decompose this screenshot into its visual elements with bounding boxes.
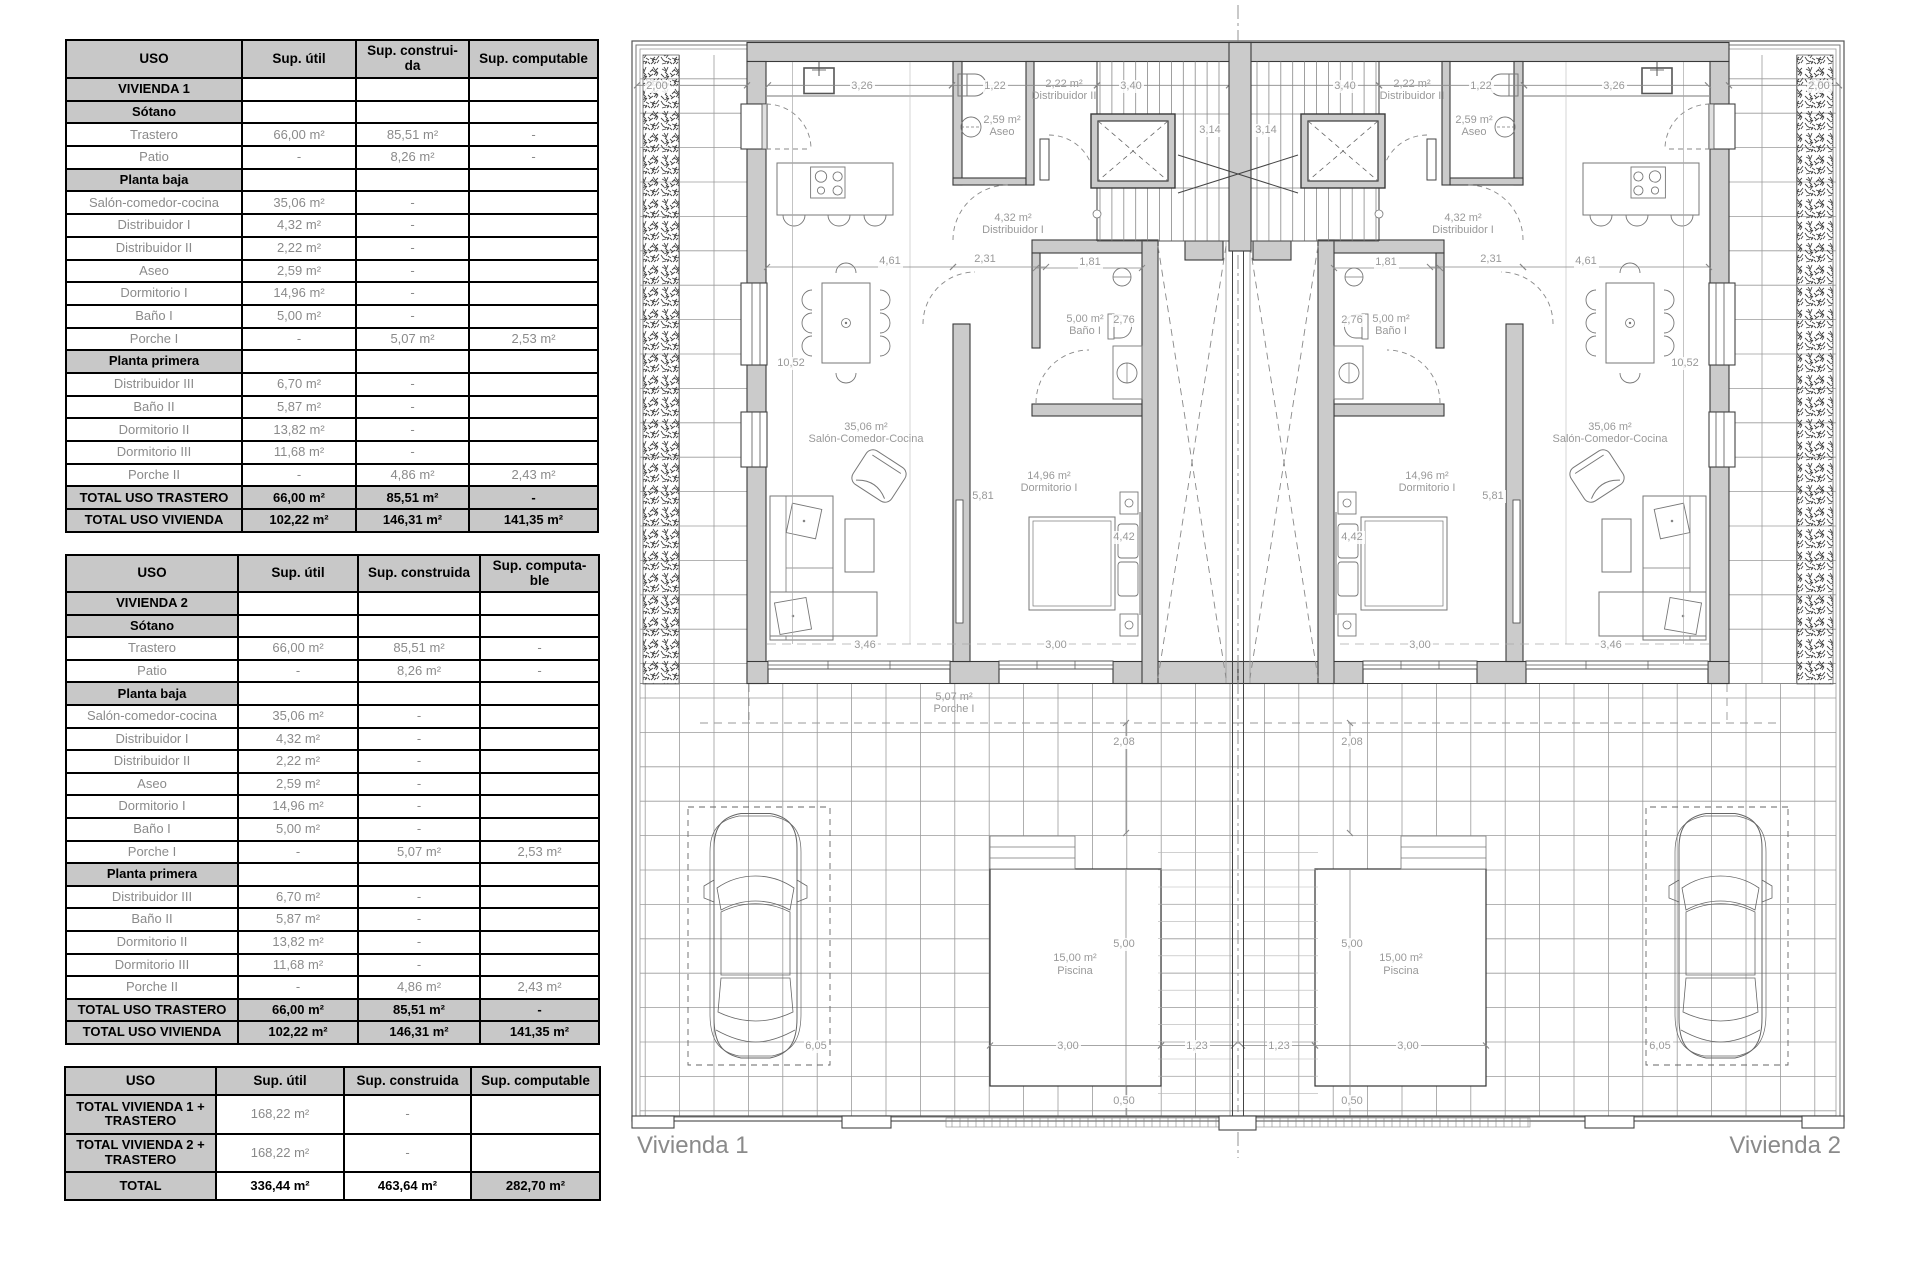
svg-text:1,22: 1,22 (1470, 80, 1491, 92)
svg-text:Piscina: Piscina (1383, 965, 1419, 977)
svg-text:3,40: 3,40 (1120, 80, 1141, 92)
svg-text:Distribuidor II: Distribuidor II (1380, 90, 1445, 102)
svg-text:2,22 m²: 2,22 m² (1045, 78, 1083, 90)
svg-text:3,00: 3,00 (1397, 1040, 1418, 1052)
svg-text:3,00: 3,00 (1409, 639, 1430, 651)
svg-text:4,32 m²: 4,32 m² (994, 212, 1032, 224)
svg-text:Distribuidor I: Distribuidor I (1432, 224, 1494, 236)
svg-text:10,52: 10,52 (1671, 357, 1699, 369)
svg-text:3,46: 3,46 (1600, 639, 1621, 651)
svg-text:4,42: 4,42 (1341, 531, 1362, 543)
svg-text:14,96 m²: 14,96 m² (1027, 470, 1071, 482)
svg-text:10,52: 10,52 (777, 357, 805, 369)
svg-text:5,00 m²: 5,00 m² (1066, 313, 1104, 325)
svg-text:3,00: 3,00 (1045, 639, 1066, 651)
svg-text:2,08: 2,08 (1341, 736, 1362, 748)
svg-text:2,59 m²: 2,59 m² (983, 114, 1021, 126)
svg-text:2,31: 2,31 (974, 253, 995, 265)
svg-text:2,59 m²: 2,59 m² (1455, 114, 1493, 126)
svg-text:1,22: 1,22 (984, 80, 1005, 92)
svg-text:2,08: 2,08 (1113, 736, 1134, 748)
svg-text:14,96 m²: 14,96 m² (1405, 470, 1449, 482)
svg-text:4,32 m²: 4,32 m² (1444, 212, 1482, 224)
svg-text:5,81: 5,81 (972, 490, 993, 502)
svg-text:2,00: 2,00 (1808, 80, 1829, 92)
svg-text:4,42: 4,42 (1113, 531, 1134, 543)
svg-text:3,00: 3,00 (1057, 1040, 1078, 1052)
svg-text:5,00 m²: 5,00 m² (1372, 313, 1410, 325)
svg-text:3,26: 3,26 (851, 80, 872, 92)
svg-text:1,23: 1,23 (1186, 1040, 1207, 1052)
svg-text:Vivienda 1: Vivienda 1 (637, 1132, 749, 1159)
svg-text:15,00 m²: 15,00 m² (1379, 952, 1423, 964)
svg-text:2,76: 2,76 (1341, 314, 1362, 326)
svg-text:Dormitorio I: Dormitorio I (1399, 482, 1456, 494)
svg-text:Distribuidor I: Distribuidor I (982, 224, 1044, 236)
svg-text:Salón-Comedor-Cocina: Salón-Comedor-Cocina (809, 433, 925, 445)
svg-text:4,61: 4,61 (879, 255, 900, 267)
svg-text:0,50: 0,50 (1113, 1095, 1134, 1107)
svg-text:2,22 m²: 2,22 m² (1393, 78, 1431, 90)
svg-text:5,00: 5,00 (1341, 938, 1362, 950)
svg-text:4,61: 4,61 (1575, 255, 1596, 267)
svg-text:Porche I: Porche I (934, 703, 975, 715)
svg-text:3,14: 3,14 (1255, 124, 1276, 136)
svg-text:35,06 m²: 35,06 m² (1588, 421, 1632, 433)
svg-text:35,06 m²: 35,06 m² (844, 421, 888, 433)
svg-text:1,23: 1,23 (1268, 1040, 1289, 1052)
svg-text:5,00: 5,00 (1113, 938, 1134, 950)
svg-text:Vivienda 2: Vivienda 2 (1729, 1132, 1841, 1159)
svg-text:Distribuidor II: Distribuidor II (1032, 90, 1097, 102)
svg-text:15,00 m²: 15,00 m² (1053, 952, 1097, 964)
svg-text:5,81: 5,81 (1482, 490, 1503, 502)
svg-text:1,81: 1,81 (1375, 256, 1396, 268)
svg-text:2,00: 2,00 (646, 80, 667, 92)
svg-text:Baño I: Baño I (1375, 325, 1407, 337)
svg-text:2,76: 2,76 (1113, 314, 1134, 326)
svg-text:Aseo: Aseo (1461, 126, 1486, 138)
svg-text:2,31: 2,31 (1480, 253, 1501, 265)
svg-text:5,07 m²: 5,07 m² (935, 691, 973, 703)
svg-text:Salón-Comedor-Cocina: Salón-Comedor-Cocina (1553, 433, 1669, 445)
svg-text:3,26: 3,26 (1603, 80, 1624, 92)
svg-text:Dormitorio I: Dormitorio I (1021, 482, 1078, 494)
svg-text:3,14: 3,14 (1199, 124, 1220, 136)
svg-text:Aseo: Aseo (989, 126, 1014, 138)
svg-text:Piscina: Piscina (1057, 965, 1093, 977)
svg-text:3,46: 3,46 (854, 639, 875, 651)
svg-text:0,50: 0,50 (1341, 1095, 1362, 1107)
svg-text:3,40: 3,40 (1334, 80, 1355, 92)
svg-text:6,05: 6,05 (1649, 1040, 1670, 1052)
svg-text:1,81: 1,81 (1079, 256, 1100, 268)
svg-text:6,05: 6,05 (805, 1040, 826, 1052)
svg-text:Baño I: Baño I (1069, 325, 1101, 337)
